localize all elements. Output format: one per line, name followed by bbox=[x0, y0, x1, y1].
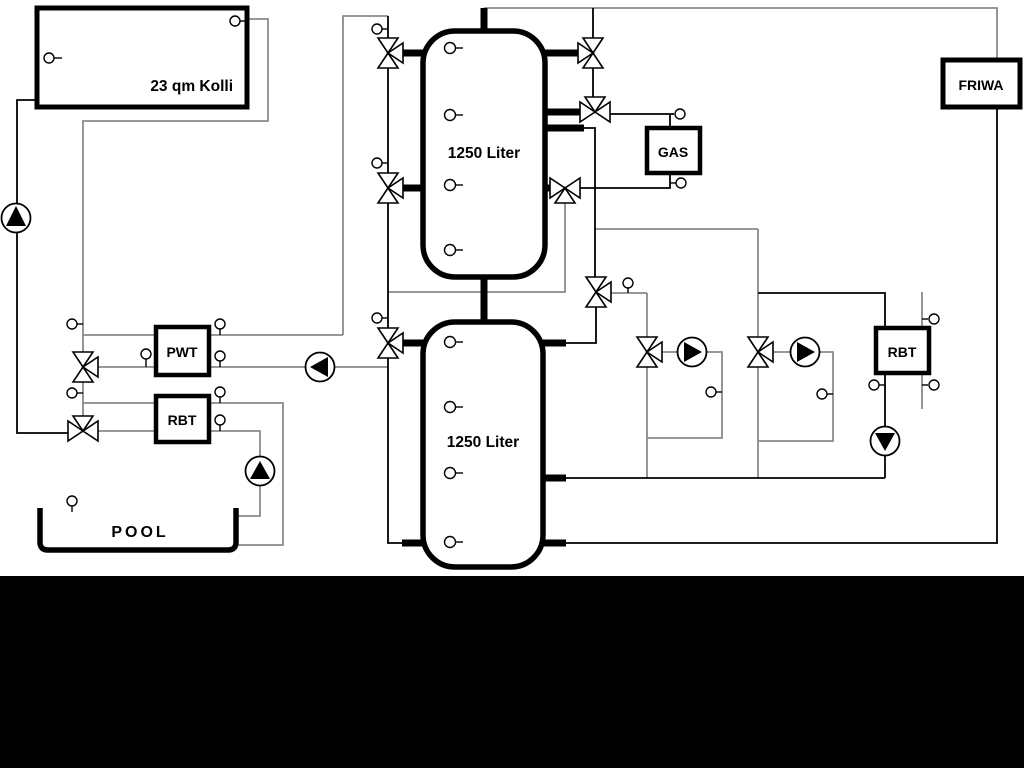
schematic-page: 23 qm Kolli 1250 Liter 1250 Liter PWT RB… bbox=[0, 0, 1024, 768]
sensor-rbt-left-top bbox=[215, 387, 225, 403]
gas-label: GAS bbox=[658, 144, 688, 160]
pipe-rbt-right-feed bbox=[758, 293, 885, 328]
rbt-left-label: RBT bbox=[168, 412, 197, 428]
valve-heating-distributor bbox=[586, 277, 611, 307]
sensor-pwt-bottom-out bbox=[215, 351, 225, 367]
sensor-gas-flow bbox=[675, 109, 685, 119]
sensor-rbt-right-out bbox=[869, 380, 885, 390]
pump-solar bbox=[2, 204, 31, 233]
pool-label: POOL bbox=[111, 524, 168, 541]
sensor-rbt-left-bottom bbox=[215, 415, 225, 431]
valve-gas-flow bbox=[580, 97, 610, 122]
sensor-rbt-right-top bbox=[922, 314, 939, 324]
pump-pool bbox=[246, 457, 275, 486]
sensor-pool-water bbox=[67, 496, 77, 512]
sensor-valve-column-2 bbox=[372, 158, 388, 168]
pump-circuit1 bbox=[678, 338, 707, 367]
valve-tank1-left-bottom bbox=[378, 173, 403, 203]
valve-tank1-right-top bbox=[578, 38, 603, 68]
sensor-valve-column-1 bbox=[372, 24, 388, 34]
collector-label: 23 qm Kolli bbox=[150, 78, 233, 95]
sensor-pwt-top-out bbox=[215, 319, 225, 335]
pipe-pool-return-upper bbox=[209, 431, 260, 457]
sensor-pwt-in bbox=[141, 349, 151, 367]
pwt-label: PWT bbox=[166, 344, 198, 360]
schematic-canvas: 23 qm Kolli 1250 Liter 1250 Liter PWT RB… bbox=[0, 0, 1024, 768]
footer-black-band bbox=[0, 576, 1024, 768]
sensor-gas-return bbox=[670, 178, 686, 188]
valve-circuit2-mixer bbox=[748, 337, 773, 367]
sensor-left-column bbox=[67, 388, 83, 398]
pump-circuit2 bbox=[791, 338, 820, 367]
pump-pwt bbox=[306, 353, 335, 382]
sensor-circuit1-loop bbox=[706, 387, 722, 397]
tank-top-label: 1250 Liter bbox=[448, 145, 520, 162]
pipe-pool-return-lower bbox=[238, 486, 260, 516]
pipe-valve4-down bbox=[566, 307, 596, 343]
pipe-tank-feed-drop bbox=[584, 128, 595, 277]
sensor-solar-flow bbox=[67, 319, 83, 329]
pipe-collector-return bbox=[17, 100, 68, 433]
sensor-circuit2-loop bbox=[817, 389, 833, 399]
valve-gas-return bbox=[550, 178, 580, 203]
pump-rbt-right bbox=[871, 427, 900, 456]
friwa-label: FRIWA bbox=[958, 77, 1003, 93]
pipe-valve-column-bottom bbox=[388, 358, 402, 543]
valve-pool-mixer bbox=[68, 416, 98, 441]
valve-pwt-diverter bbox=[73, 352, 98, 382]
valve-tank2-left bbox=[378, 328, 403, 358]
valve-circuit1-mixer bbox=[637, 337, 662, 367]
tank-bottom-label: 1250 Liter bbox=[447, 434, 519, 451]
rbt-right-label: RBT bbox=[888, 344, 917, 360]
sensor-rbt-right-bottom bbox=[922, 380, 939, 390]
sensor-circuit1-feed bbox=[623, 278, 633, 293]
sensor-valve-column-3 bbox=[372, 313, 388, 323]
valve-tank1-left-top bbox=[378, 38, 403, 68]
